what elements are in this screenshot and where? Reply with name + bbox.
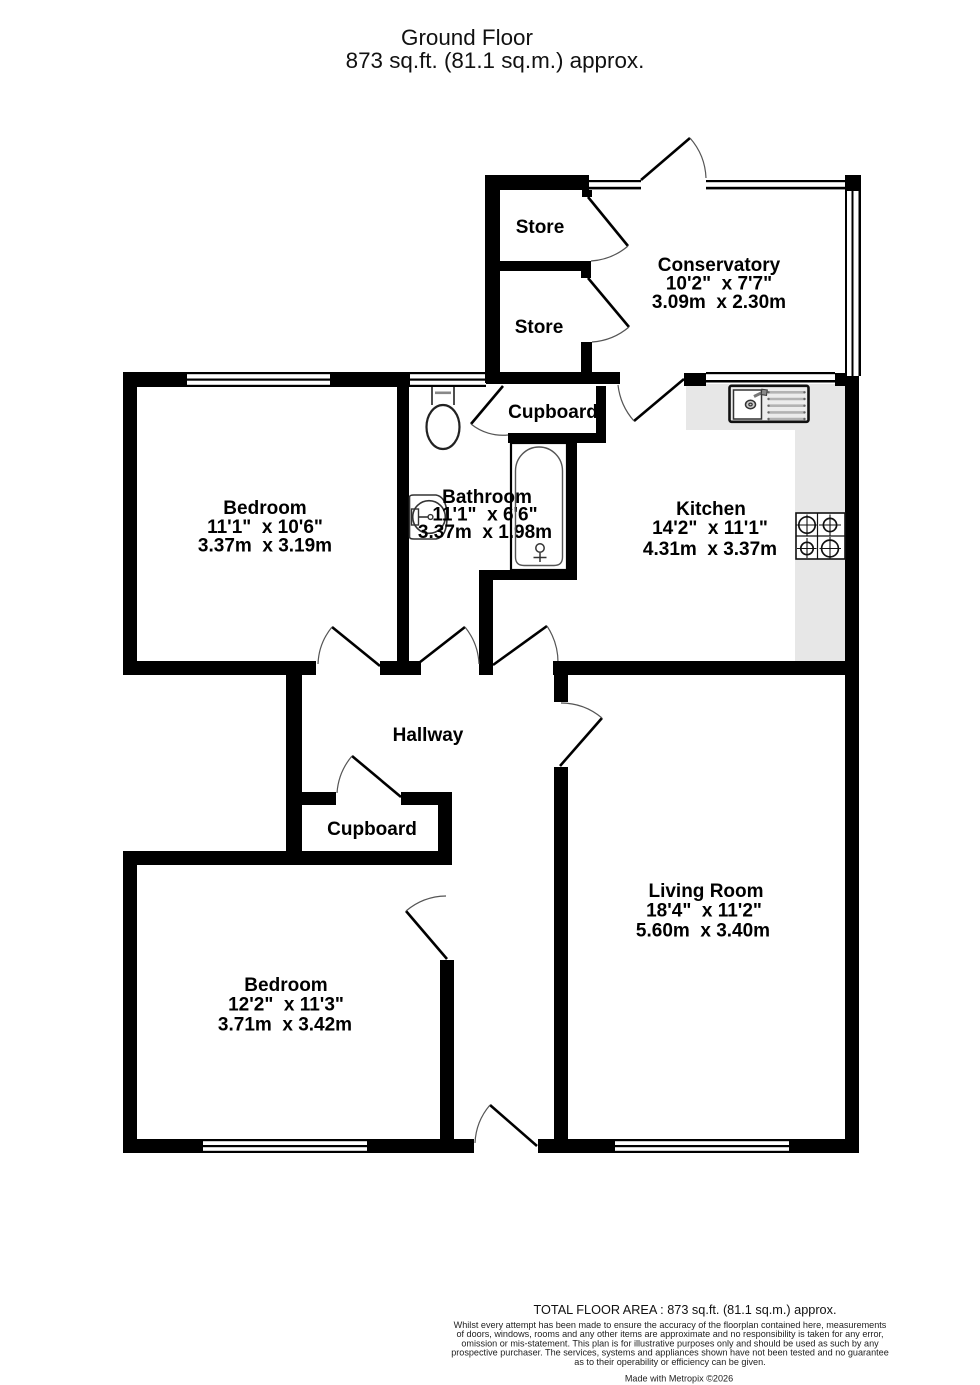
svg-text:TOTAL FLOOR AREA : 873 sq.ft.: TOTAL FLOOR AREA : 873 sq.ft. (81.1 sq.m… xyxy=(534,1303,837,1317)
svg-text:3.71m x 3.42m: 3.71m x 3.42m xyxy=(218,1015,352,1036)
svg-text:Hallway: Hallway xyxy=(393,725,464,746)
svg-text:873 sq.ft. (81.1 sq.m.) approx: 873 sq.ft. (81.1 sq.m.) approx. xyxy=(346,48,645,73)
svg-text:as to their operability or eff: as to their operability or efficiency ca… xyxy=(574,1357,765,1367)
svg-text:Kitchen: Kitchen xyxy=(676,499,746,520)
svg-text:Cupboard: Cupboard xyxy=(508,402,598,423)
svg-text:Store: Store xyxy=(515,317,564,338)
svg-text:Store: Store xyxy=(516,217,565,238)
svg-text:Made with Metropix ©2026: Made with Metropix ©2026 xyxy=(625,1373,733,1383)
svg-text:Bedroom: Bedroom xyxy=(244,975,327,996)
svg-text:3.37m x 1.98m: 3.37m x 1.98m xyxy=(418,522,552,543)
svg-text:Cupboard: Cupboard xyxy=(327,819,417,840)
svg-text:14'2" x 11'1": 14'2" x 11'1" xyxy=(652,518,768,539)
svg-text:5.60m x 3.40m: 5.60m x 3.40m xyxy=(636,921,770,942)
svg-text:Bedroom: Bedroom xyxy=(223,498,306,519)
svg-text:Ground Floor: Ground Floor xyxy=(401,25,533,50)
svg-text:3.09m x 2.30m: 3.09m x 2.30m xyxy=(652,292,786,313)
svg-text:3.37m x 3.19m: 3.37m x 3.19m xyxy=(198,536,332,557)
svg-text:12'2" x 11'3": 12'2" x 11'3" xyxy=(228,995,344,1016)
svg-text:18'4" x 11'2": 18'4" x 11'2" xyxy=(646,901,762,922)
svg-text:Living Room: Living Room xyxy=(648,881,763,902)
svg-text:4.31m x 3.37m: 4.31m x 3.37m xyxy=(643,539,777,560)
